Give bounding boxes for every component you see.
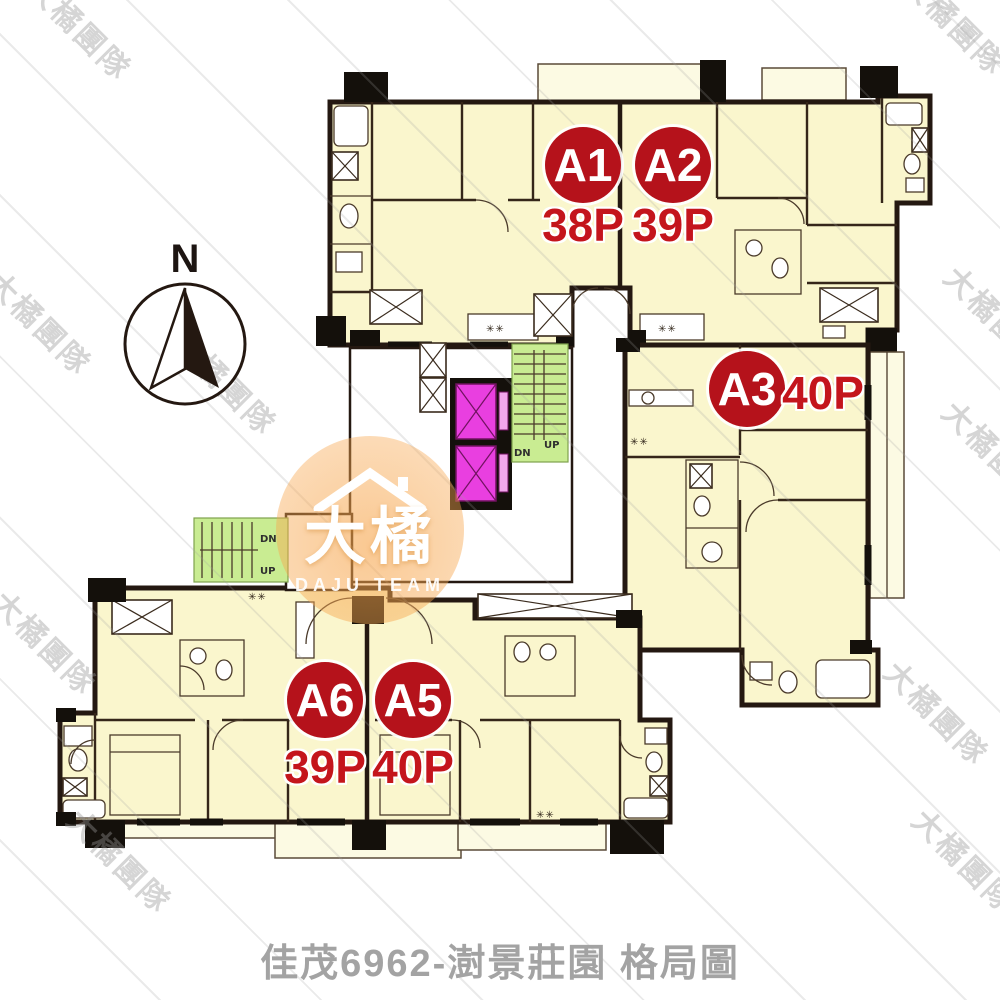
unit-area-a1: 38P bbox=[542, 198, 624, 252]
svg-text:✳✳: ✳✳ bbox=[658, 324, 677, 335]
unit-badge-a2: A2 bbox=[635, 127, 711, 203]
unit-area-a3: 40P bbox=[782, 366, 864, 420]
unit-badge-a1: A1 bbox=[545, 127, 621, 203]
unit-badge-a6: A6 bbox=[287, 662, 363, 738]
unit-badge-a3: A3 bbox=[709, 351, 785, 427]
north-label: N bbox=[171, 237, 200, 281]
stair-dn-label: DN bbox=[514, 448, 531, 459]
core-staircase: DN UP bbox=[512, 344, 568, 462]
north-arrow-right-half bbox=[185, 288, 219, 388]
stair-up-label: UP bbox=[544, 440, 559, 451]
north-arrow-left-half bbox=[151, 288, 185, 388]
svg-text:✳✳: ✳✳ bbox=[536, 810, 555, 821]
north-arrow: N bbox=[112, 236, 258, 416]
secondary-staircase: DN UP bbox=[194, 518, 288, 582]
svg-text:✳✳: ✳✳ bbox=[248, 592, 267, 603]
balcony-bottom-3 bbox=[458, 822, 606, 850]
page-title: 佳茂6962-澍景莊園 格局圖 bbox=[0, 932, 1000, 987]
stair-dn-label-2: DN bbox=[260, 534, 277, 545]
svg-text:✳✳: ✳✳ bbox=[486, 324, 505, 335]
unit-badge-a5: A5 bbox=[375, 662, 451, 738]
floorplan-page: ✳✳ bbox=[0, 0, 1000, 1000]
entry-column bbox=[352, 596, 384, 624]
elevator-shafts bbox=[450, 378, 512, 510]
unit-area-a2: 39P bbox=[632, 198, 714, 252]
unit-area-a5: 40P bbox=[372, 740, 454, 794]
balcony-top-1 bbox=[538, 64, 710, 102]
stair-up-label-2: UP bbox=[260, 566, 275, 577]
floorplan-drawing: ✳✳ bbox=[0, 0, 1000, 1000]
unit-area-a6: 39P bbox=[284, 740, 366, 794]
balcony-top-2 bbox=[762, 68, 846, 100]
svg-text:✳✳: ✳✳ bbox=[630, 437, 649, 448]
unit-a6-a5-block: ✳✳ bbox=[56, 578, 670, 858]
